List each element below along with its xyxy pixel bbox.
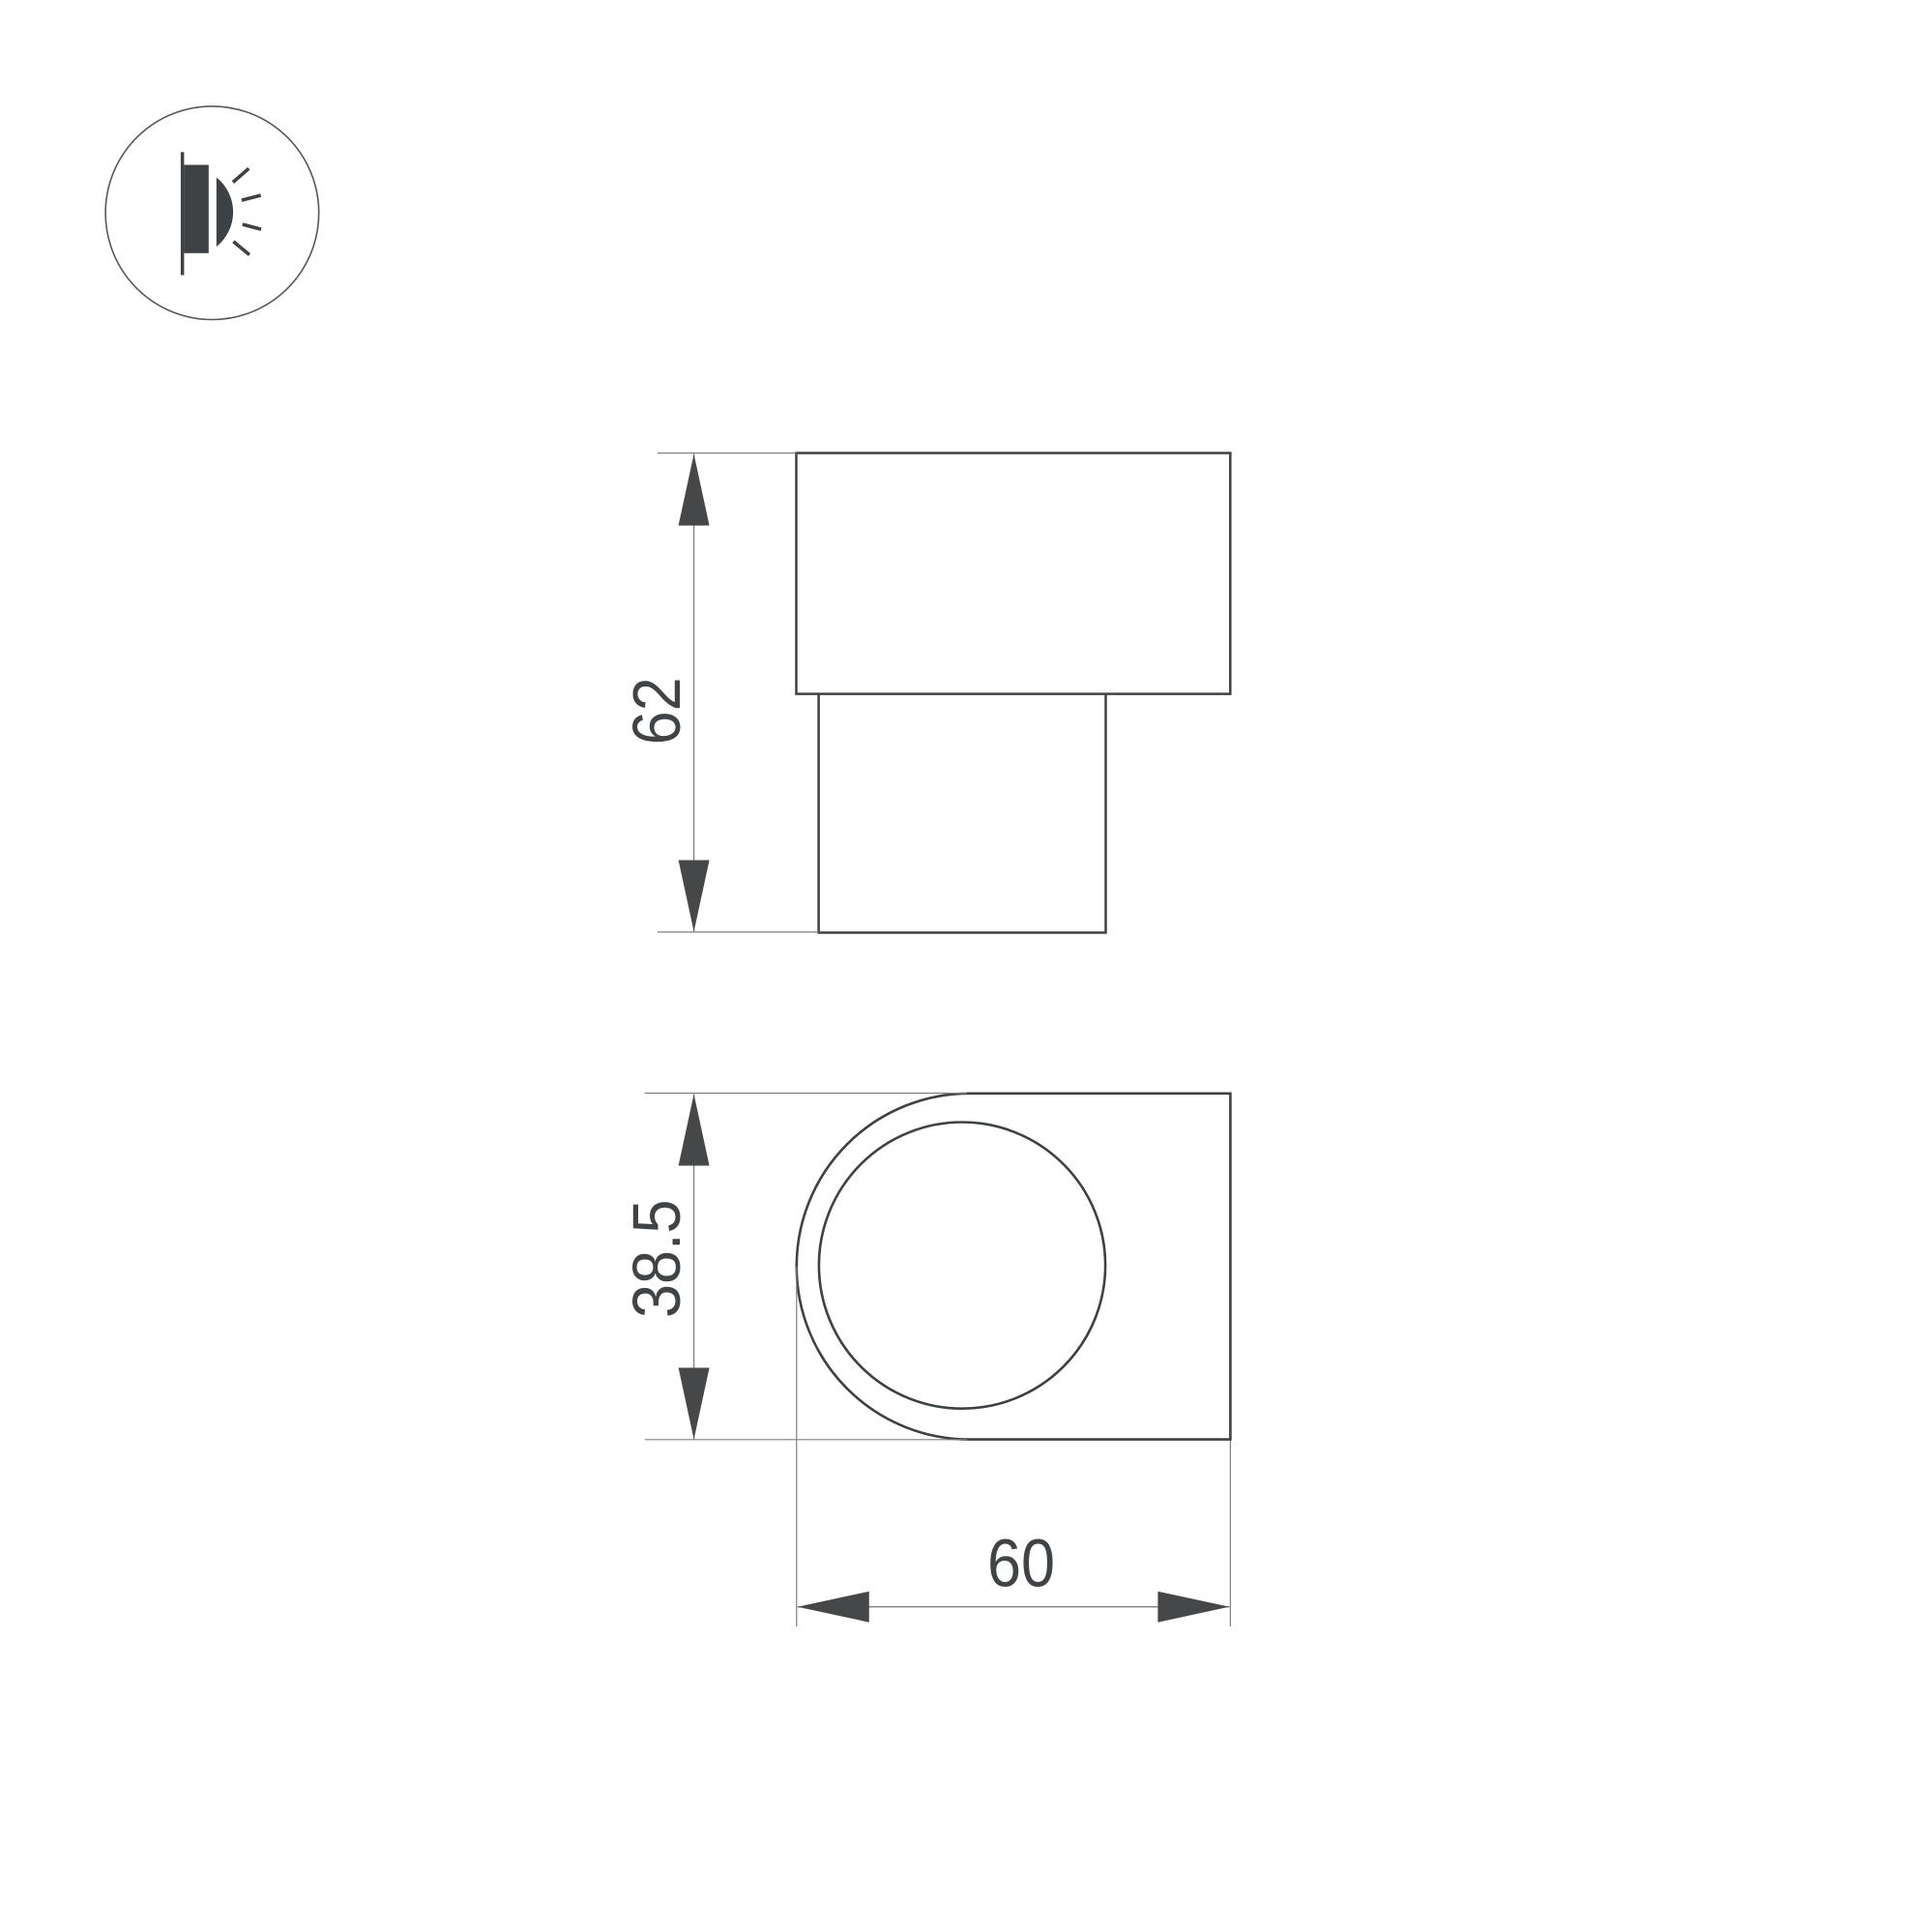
svg-text:38.5: 38.5	[620, 1199, 695, 1318]
svg-text:62: 62	[620, 677, 695, 745]
svg-text:60: 60	[987, 1526, 1055, 1601]
